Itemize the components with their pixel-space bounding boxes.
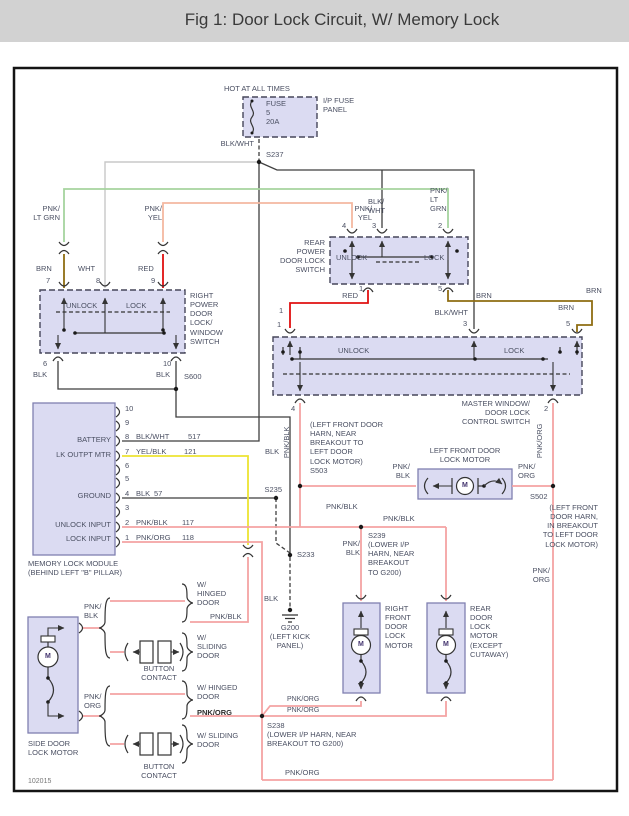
mem-pin-1: 1 [125, 533, 129, 542]
rear-pin1-number: 1 [359, 284, 363, 293]
pnk-yel-conn-label: PNK/ YEL [126, 204, 162, 222]
blk-low-label: BLK [264, 594, 278, 603]
blk-mid-label: BLK [265, 447, 279, 456]
s235-label: S235 [252, 485, 282, 494]
mem-w7-label: YEL/BLK [136, 447, 166, 456]
lf-motor-name: LEFT FRONT DOOR LOCK MOTOR [416, 446, 514, 464]
rear-motor-m: M [443, 641, 449, 650]
circuit1-label-a: 1 [279, 306, 283, 315]
mem-pin-6: 6 [125, 461, 129, 470]
lf-motor-pnkorg-label: PNK/ ORG [518, 462, 536, 480]
right-switch-unlock: UNLOCK [66, 301, 97, 310]
mem-w4-label: BLK [136, 489, 150, 498]
button-contact1-label: BUTTON CONTACT [130, 664, 188, 682]
pin9-number: 9 [151, 276, 155, 285]
hinged2-label: W/ HINGED DOOR [197, 683, 237, 701]
pnkblk-c-label: PNK/ BLK [334, 539, 360, 557]
mem-ground-label: GROUND [30, 491, 111, 500]
pnkorg-bottom-label: PNK/ORG [285, 768, 320, 777]
mem-pin-10: 10 [125, 404, 133, 413]
mem-g2-label: 117 [182, 518, 194, 527]
wht-pin8-label: WHT [78, 264, 95, 273]
master-switch-name: MASTER WINDOW/ DOOR LOCK CONTROL SWITCH [418, 399, 530, 426]
rf-motor-m: M [358, 641, 364, 650]
mem-unlock-input-label: UNLOCK INPUT [30, 520, 111, 529]
side-pnkorg-label: PNK/ ORG [84, 692, 102, 710]
sliding2-label: W/ SLIDING DOOR [197, 731, 238, 749]
rf-motor-name: RIGHT FRONT DOOR LOCK MOTOR [385, 604, 413, 650]
mem-g4-label: 57 [154, 489, 162, 498]
blk-pin6-label: BLK [33, 370, 47, 379]
mem-pin-9: 9 [125, 418, 129, 427]
mem-w2-label: PNK/BLK [136, 518, 168, 527]
lf-motor-m: M [462, 482, 468, 491]
master-unlock: UNLOCK [338, 346, 369, 355]
s502-label: S502 [530, 492, 548, 501]
wiring-diagram-page: Fig 1: Door Lock Circuit, W/ Memory Lock [0, 0, 629, 816]
pnkorg-feed1-label: PNK/ORG [287, 696, 319, 705]
side-motor-m: M [45, 653, 51, 662]
brn-corner-label: BRN [586, 286, 602, 295]
rear-pin5-number: 5 [438, 284, 442, 293]
master-pin2-number: 2 [544, 404, 548, 413]
mem-pin-5: 5 [125, 474, 129, 483]
pnkblk-b-label: PNK/BLK [383, 514, 415, 523]
mem-pin-8: 8 [125, 432, 129, 441]
pnkblk-vert-label: PNK/BLK [282, 426, 291, 458]
mem-g1-label: 118 [182, 533, 194, 542]
figure-number: 102015 [28, 778, 51, 787]
hinged1-label: W/ HINGED DOOR [197, 580, 226, 607]
rear-switch-name: REAR POWER DOOR LOCK SWITCH [243, 238, 325, 275]
mem-w1-label: PNK/ORG [136, 533, 171, 542]
master-switch-box [273, 337, 582, 395]
mem-lock-input-label: LOCK INPUT [30, 534, 111, 543]
rear-pin3-number: 3 [372, 221, 376, 230]
pnkblk-a-label: PNK/BLK [326, 502, 358, 511]
pnkblk-merge-label: PNK/BLK [210, 612, 242, 621]
rear-switch-lock: LOCK [424, 253, 444, 262]
lf-motor-pnkblk-label: PNK/ BLK [386, 462, 410, 480]
mem-pin-3: 3 [125, 503, 129, 512]
circuit1-label-b: 1 [277, 320, 281, 329]
mem-g8-label: 517 [188, 432, 201, 441]
mem-battery-label: BATTERY [30, 435, 111, 444]
mem-pin-2: 2 [125, 518, 129, 527]
fuse-label: FUSE 5 20A [266, 99, 286, 126]
pnk-ltgrn-conn-label: PNK/ LT GRN [18, 204, 60, 222]
sliding1-label: W/ SLIDING DOOR [197, 633, 227, 660]
pnkorg-merge-label: PNK/ORG [197, 708, 232, 717]
pin10-number: 10 [163, 359, 171, 368]
s233-label: S233 [297, 550, 315, 559]
brn-master5-label: BRN [546, 303, 574, 312]
master-pin5-number: 5 [566, 319, 570, 328]
side-motor-name: SIDE DOOR LOCK MOTOR [28, 739, 78, 757]
s237-label: S237 [266, 150, 284, 159]
master-pin3-number: 3 [463, 319, 467, 328]
rear-blkwht-label: BLK/ WHT [368, 197, 385, 215]
memory-module-name: MEMORY LOCK MODULE (BEHIND LEFT "B" PILL… [28, 559, 122, 577]
pin6-number: 6 [43, 359, 47, 368]
red-rear1-label: RED [332, 291, 358, 300]
blkwht-master3-label: BLK/WHT [424, 308, 468, 317]
rear-pin4-number: 4 [342, 221, 346, 230]
s239-note: S239 (LOWER I/P HARN, NEAR BREAKOUT TO G… [368, 531, 414, 577]
s238-note: S238 (LOWER I/P HARN, NEAR BREAKOUT TO G… [267, 721, 356, 748]
rear-motor-name: REAR DOOR LOCK MOTOR (EXCEPT CUTAWAY) [470, 604, 508, 659]
g200-label: G200 (LEFT KICK PANEL) [258, 623, 322, 650]
master-lock: LOCK [504, 346, 524, 355]
pnkorg-feed2-label: PNK/ORG [287, 707, 319, 716]
rear-pin2-number: 2 [438, 221, 442, 230]
blkwht-fuse-wire-label: BLK/WHT [214, 139, 254, 148]
mem-g7-label: 121 [184, 447, 197, 456]
red-pin9-label: RED [138, 264, 154, 273]
mem-w8-label: BLK/WHT [136, 432, 169, 441]
s502-note: (LEFT FRONT DOOR HARN, IN BREAKOUT TO LE… [490, 503, 598, 549]
brn-pin7-label: BRN [36, 264, 52, 273]
pin7-number: 7 [46, 276, 50, 285]
rear-pnkltgrn-label: PNK/ LT GRN [430, 186, 448, 213]
mem-lk-outpt-label: LK OUTPT MTR [30, 450, 111, 459]
memory-module-box [33, 403, 115, 555]
brn-rear5-label: BRN [476, 291, 492, 300]
button-contact2-label: BUTTON CONTACT [130, 762, 188, 780]
blk-pin10-label: BLK [156, 370, 170, 379]
pnkorg-right-label: PNK/ ORG [522, 566, 550, 584]
pin8-number: 8 [96, 276, 100, 285]
mem-pin-7: 7 [125, 447, 129, 456]
pnkorg-vert-label: PNK/ORG [535, 424, 544, 459]
mem-pin-4: 4 [125, 489, 129, 498]
ip-fuse-panel-label: I/P FUSE PANEL [323, 96, 354, 114]
rear-switch-unlock: UNLOCK [336, 253, 367, 262]
master-pin4-number: 4 [291, 404, 295, 413]
side-pnkblk-label: PNK/ BLK [84, 602, 102, 620]
right-switch-lock: LOCK [126, 301, 146, 310]
s503-note: (LEFT FRONT DOOR HARN, NEAR BREAKOUT TO … [310, 420, 383, 475]
hot-at-all-times-label: HOT AT ALL TIMES [224, 84, 290, 93]
right-switch-name: RIGHT POWER DOOR LOCK/ WINDOW SWITCH [190, 291, 223, 346]
s600-label: S600 [184, 372, 202, 381]
